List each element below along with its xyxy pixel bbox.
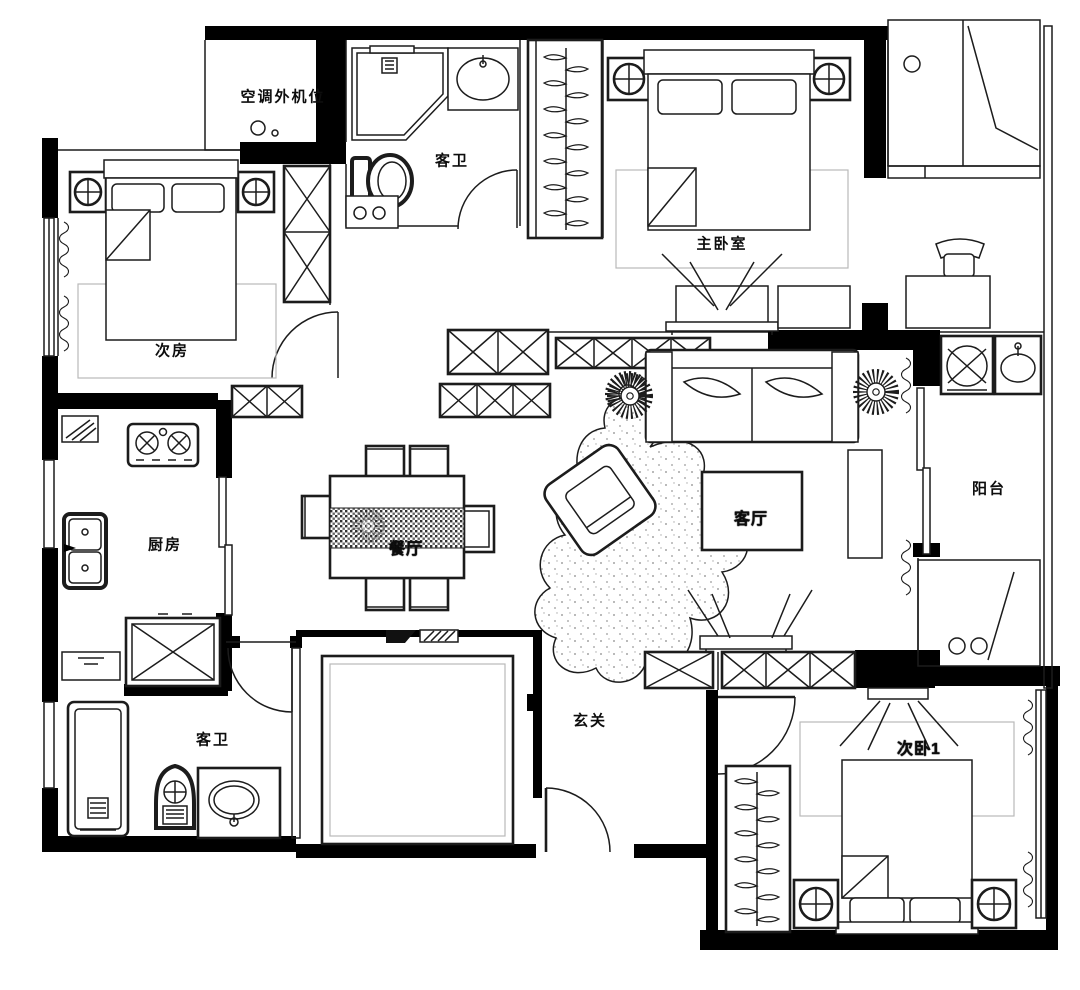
dining-set bbox=[302, 446, 494, 610]
double-bed bbox=[644, 50, 814, 230]
thin-walls bbox=[58, 26, 1052, 838]
dining-chair bbox=[410, 578, 448, 610]
balcony-sliding-door bbox=[917, 388, 930, 554]
entry-door bbox=[546, 788, 610, 852]
label-ac-outdoor-unit-bay: 空调外机位 bbox=[240, 86, 325, 107]
dining-table bbox=[330, 476, 464, 578]
double-bed bbox=[836, 760, 978, 934]
bathtub bbox=[68, 702, 128, 836]
radiator bbox=[420, 630, 458, 642]
gas-stove bbox=[128, 424, 198, 466]
balcony-sink bbox=[995, 336, 1041, 394]
panel-diagonal bbox=[968, 26, 1038, 150]
master-bedroom-furniture bbox=[608, 50, 850, 335]
desk bbox=[906, 276, 990, 328]
kitchen-fixtures bbox=[62, 416, 220, 686]
door-second-room bbox=[272, 312, 338, 378]
label-kitchen: 厨房 bbox=[148, 534, 182, 555]
label-guest-bath-top: 客卫 bbox=[435, 150, 469, 171]
label-second-bedroom-1: 次卧1 bbox=[897, 735, 941, 759]
entry-cabinet bbox=[722, 652, 855, 688]
label-dining-room: 餐厅 bbox=[389, 535, 423, 559]
guest-bath-top-fixtures bbox=[346, 46, 518, 228]
nightstand bbox=[972, 880, 1016, 928]
label-living-room: 客厅 bbox=[734, 505, 768, 529]
living-room-furniture bbox=[535, 350, 892, 682]
window-kitchen bbox=[44, 460, 54, 548]
label-guest-bath-bottom: 客卫 bbox=[196, 729, 230, 750]
label-balcony: 阳台 bbox=[972, 478, 1006, 499]
label-master-bedroom: 主卧室 bbox=[696, 233, 747, 254]
storage-room bbox=[322, 656, 513, 844]
dresser bbox=[778, 286, 850, 328]
door-guest-bath-bottom bbox=[228, 648, 292, 712]
wardrobe bbox=[726, 766, 790, 932]
kitchen-cabinet bbox=[126, 614, 220, 686]
kitchen-sliding-door bbox=[219, 477, 232, 615]
label-entry-hall: 玄关 bbox=[573, 710, 607, 731]
kitchen-sink bbox=[64, 514, 106, 588]
study-area bbox=[888, 20, 1040, 328]
label-second-room: 次房 bbox=[155, 340, 189, 361]
bath-counter bbox=[62, 652, 120, 680]
side-table bbox=[848, 450, 882, 558]
tv-console bbox=[662, 254, 782, 335]
nightstand bbox=[238, 172, 274, 212]
dining-chair bbox=[366, 578, 404, 610]
hall-closet bbox=[528, 40, 602, 238]
washing-machine bbox=[941, 336, 993, 394]
dining-chair bbox=[366, 446, 404, 478]
nightstand bbox=[70, 172, 106, 212]
toilet bbox=[156, 766, 194, 828]
nightstand bbox=[794, 880, 838, 928]
range-hood-vent bbox=[62, 416, 98, 442]
floor-plan: 空调外机位 客卫 主卧室 次房 厨房 餐厅 客厅 阳台 客卫 玄关 次卧1 bbox=[0, 0, 1080, 990]
window-bath bbox=[44, 702, 54, 788]
shoe-cabinet bbox=[232, 386, 302, 417]
door-second-bedroom-1 bbox=[718, 697, 795, 774]
door-guest-bath-top bbox=[458, 170, 517, 229]
double-bed bbox=[104, 160, 238, 340]
floor-plan-drawing bbox=[0, 0, 1080, 990]
entry-cabinet bbox=[645, 652, 713, 688]
vanity-sink bbox=[198, 768, 280, 838]
dining-chair bbox=[410, 446, 448, 478]
second-bedroom-1-furniture bbox=[645, 652, 1016, 934]
ac-outdoor-unit-bay bbox=[251, 121, 278, 136]
bath-cabinet bbox=[346, 196, 398, 228]
second-room-furniture bbox=[70, 160, 330, 417]
sofa bbox=[646, 350, 858, 442]
shower bbox=[352, 46, 448, 140]
desk-chair bbox=[936, 239, 984, 277]
cabinet bbox=[448, 330, 548, 374]
guest-bath-bottom-fixtures bbox=[68, 702, 280, 838]
entry-hall-items bbox=[322, 630, 513, 844]
wardrobe bbox=[284, 166, 330, 302]
cabinet bbox=[440, 384, 550, 417]
bathroom-sink bbox=[448, 48, 518, 110]
